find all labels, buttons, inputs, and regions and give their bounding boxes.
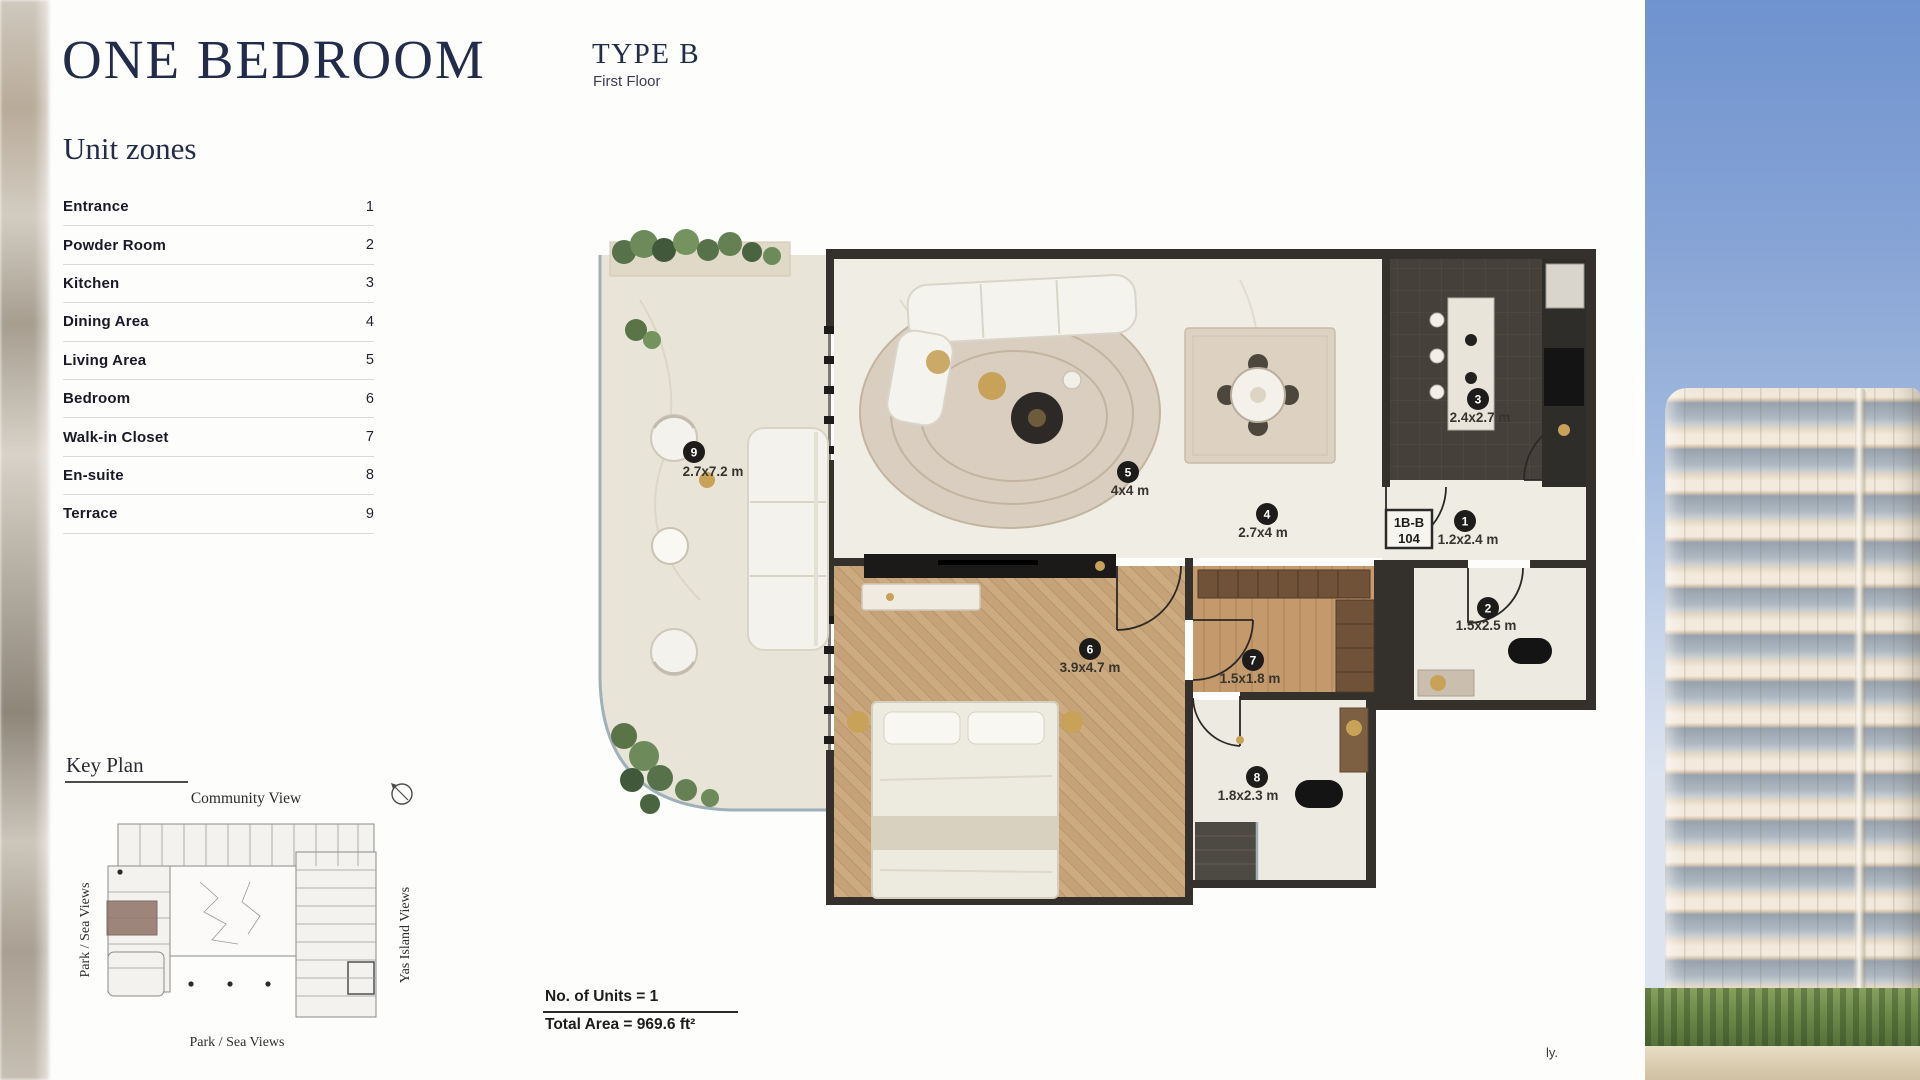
building-photo — [1645, 0, 1920, 1080]
svg-text:7: 7 — [1250, 654, 1257, 668]
bed — [847, 702, 1083, 898]
zone-number: 7 — [366, 429, 374, 445]
key-plan-yas-island-views-label: Yas Island Views — [398, 865, 418, 1005]
list-item: Entrance 1 — [63, 188, 374, 226]
living-sofa — [907, 274, 1138, 344]
tower-seam — [1853, 388, 1867, 998]
bedroom-console — [862, 584, 980, 610]
svg-text:3.9x4.7 m: 3.9x4.7 m — [1060, 660, 1121, 675]
key-plan-underline — [65, 781, 188, 783]
zone-label: Living Area — [63, 352, 146, 369]
zone-number: 2 — [366, 237, 374, 253]
hedge-greenery — [1645, 988, 1920, 1046]
floor-label: First Floor — [593, 73, 661, 90]
list-item: Living Area 5 — [63, 342, 374, 380]
brochure-page: ONE BEDROOM TYPE B First Floor Unit zone… — [0, 0, 1920, 1080]
svg-text:1: 1 — [1462, 515, 1469, 529]
key-plan-map — [100, 812, 400, 1027]
keyplan-right-wing — [296, 852, 376, 1017]
key-plan-community-view-label: Community View — [146, 790, 346, 808]
svg-text:4x4 m: 4x4 m — [1111, 483, 1149, 498]
dining-set — [1185, 328, 1335, 463]
svg-text:5: 5 — [1125, 466, 1132, 480]
zone-number: 9 — [366, 506, 374, 522]
zone-label: Terrace — [63, 505, 118, 522]
zone-number: 6 — [366, 391, 374, 407]
list-item: Terrace 9 — [63, 495, 374, 533]
svg-text:2.7x4 m: 2.7x4 m — [1238, 525, 1288, 540]
svg-text:4: 4 — [1264, 508, 1271, 522]
unit-number-box: 1B-B 104 — [1386, 510, 1432, 548]
svg-text:2.4x2.7 m: 2.4x2.7 m — [1450, 410, 1511, 425]
unit-code: 1B-B — [1394, 515, 1424, 530]
svg-text:1.2x2.4 m: 1.2x2.4 m — [1438, 532, 1499, 547]
zone-number: 4 — [366, 314, 374, 330]
keyplan-core — [170, 866, 296, 956]
zone-label: Walk-in Closet — [63, 429, 169, 446]
key-plan-park-sea-views-left-label: Park / Sea Views — [78, 860, 98, 1000]
zone-number: 8 — [366, 467, 374, 483]
key-plan-heading: Key Plan — [66, 753, 144, 778]
unit-zones-list: Entrance 1 Powder Room 2 Kitchen 3 Dinin… — [63, 188, 374, 534]
list-item: Kitchen 3 — [63, 265, 374, 303]
list-item: Walk-in Closet 7 — [63, 418, 374, 456]
terrace-sofa — [748, 428, 828, 650]
zone-number: 5 — [366, 352, 374, 368]
svg-text:2.7x7.2 m: 2.7x7.2 m — [683, 464, 744, 479]
beach-band — [1645, 1046, 1920, 1080]
keyplan-bottom-left-wing — [108, 952, 164, 996]
units-count: No. of Units = 1 — [545, 988, 658, 1006]
zone-label: Entrance — [63, 198, 129, 215]
unit-zones-heading: Unit zones — [63, 131, 196, 167]
svg-text:2: 2 — [1485, 602, 1492, 616]
tower-render — [1665, 388, 1920, 998]
truncated-disclaimer-text: ly. — [1546, 1045, 1558, 1060]
svg-text:1.8x2.3 m: 1.8x2.3 m — [1218, 788, 1279, 803]
svg-text:8: 8 — [1254, 771, 1261, 785]
left-photo-strip — [0, 0, 49, 1080]
list-item: Powder Room 2 — [63, 226, 374, 264]
summary-divider — [543, 1011, 738, 1013]
svg-text:1.5x2.5 m: 1.5x2.5 m — [1456, 618, 1517, 633]
zone-number: 3 — [366, 275, 374, 291]
zone-label: Kitchen — [63, 275, 119, 292]
floor-plan: 1B-B 104 1 1.2x2.4 m 2 1.5x2.5 m 3 2.4x2… — [540, 180, 1600, 915]
svg-text:9: 9 — [691, 446, 698, 460]
list-item: Dining Area 4 — [63, 303, 374, 341]
north-compass-icon — [388, 780, 414, 806]
zone-number: 1 — [366, 199, 374, 215]
list-item: En-suite 8 — [63, 457, 374, 495]
unit-type-label: TYPE B — [592, 38, 700, 71]
zone-label: Dining Area — [63, 313, 149, 330]
zone-label: Bedroom — [63, 390, 130, 407]
zone-label: Powder Room — [63, 237, 166, 254]
svg-text:1.5x1.8 m: 1.5x1.8 m — [1220, 671, 1281, 686]
keyplan-unit-highlight — [107, 901, 157, 935]
svg-text:3: 3 — [1475, 393, 1482, 407]
unit-number: 104 — [1398, 531, 1420, 546]
page-title: ONE BEDROOM — [62, 28, 486, 91]
media-wall — [864, 554, 1116, 578]
total-area: Total Area = 969.6 ft² — [545, 1016, 695, 1034]
zone-label: En-suite — [63, 467, 124, 484]
list-item: Bedroom 6 — [63, 380, 374, 418]
svg-text:6: 6 — [1087, 643, 1094, 657]
key-plan-park-sea-views-bottom-label: Park / Sea Views — [137, 1035, 337, 1051]
